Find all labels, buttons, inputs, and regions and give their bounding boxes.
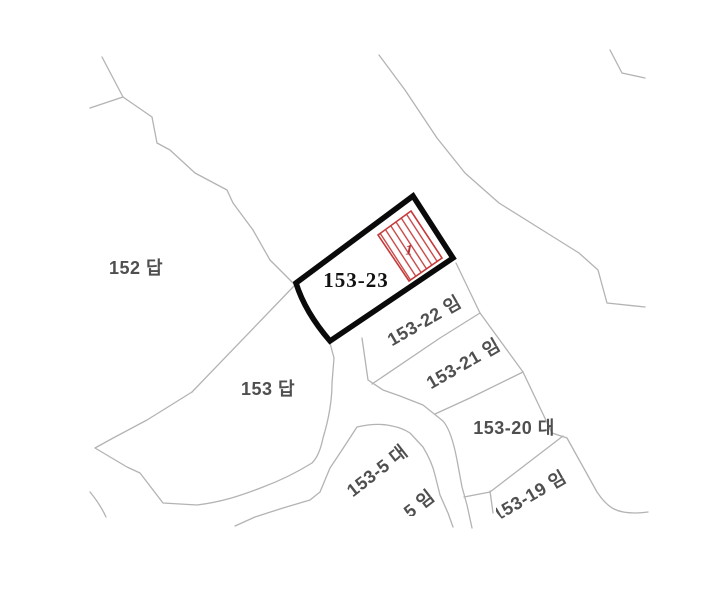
label-parcel-153-5: 153-5 대 xyxy=(343,441,411,501)
boundary-153-dap-blob xyxy=(95,343,334,505)
boundary-topright-short xyxy=(610,50,645,78)
label-parcel-153-21: 153-21 임 xyxy=(423,335,504,393)
label-parcel-153-20: 153-20 대 xyxy=(473,418,555,438)
label-parcel-153-22: 153-22 임 xyxy=(384,292,465,350)
label-parcel-153-23: 153-23 xyxy=(323,268,389,292)
map-content: 152 답 153 답 153-23 1 153-22 임 153-21 임 1… xyxy=(90,50,648,528)
cadastral-map: 152 답 153 답 153-23 1 153-22 임 153-21 임 1… xyxy=(0,0,725,600)
label-group-153-19: 153-19 임 xyxy=(489,467,570,525)
boundary-west-meander xyxy=(102,57,294,284)
boundary-19-small-segment xyxy=(490,491,493,513)
label-parcel-partial: 5 임 xyxy=(400,486,438,522)
label-parcel-153-19: 153-19 임 xyxy=(489,467,570,525)
boundary-152-153-divider xyxy=(192,286,294,392)
label-parcel-153-dap: 153 답 xyxy=(241,379,295,399)
label-group-partial: 5 임 xyxy=(400,486,438,522)
boundary-bottomleft-arc xyxy=(90,492,106,517)
label-hatched-area-1: 1 xyxy=(405,242,413,258)
boundary-west-branch xyxy=(90,97,123,108)
label-parcel-152-dap: 152 답 xyxy=(109,258,163,278)
map-svg: 152 답 153 답 153-23 1 153-22 임 153-21 임 1… xyxy=(0,0,725,600)
